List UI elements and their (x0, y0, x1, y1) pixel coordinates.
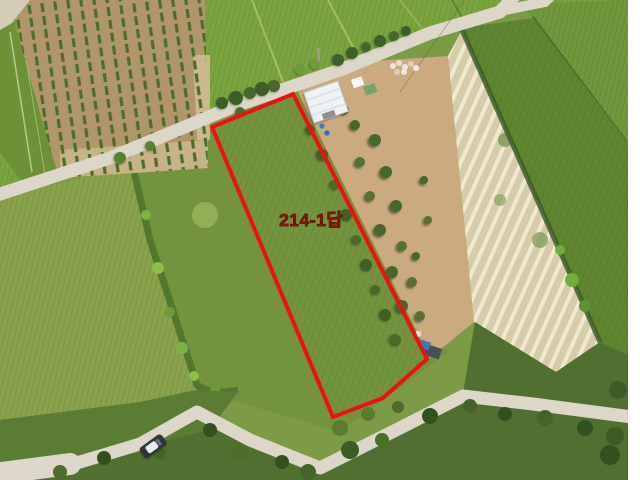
white-border (628, 0, 640, 480)
aerial-photo-frame: 214-1답 (0, 0, 640, 480)
light-patch (192, 202, 218, 228)
aerial-photo: 214-1답 (0, 0, 640, 480)
parcel-label: 214-1답 (279, 210, 343, 230)
